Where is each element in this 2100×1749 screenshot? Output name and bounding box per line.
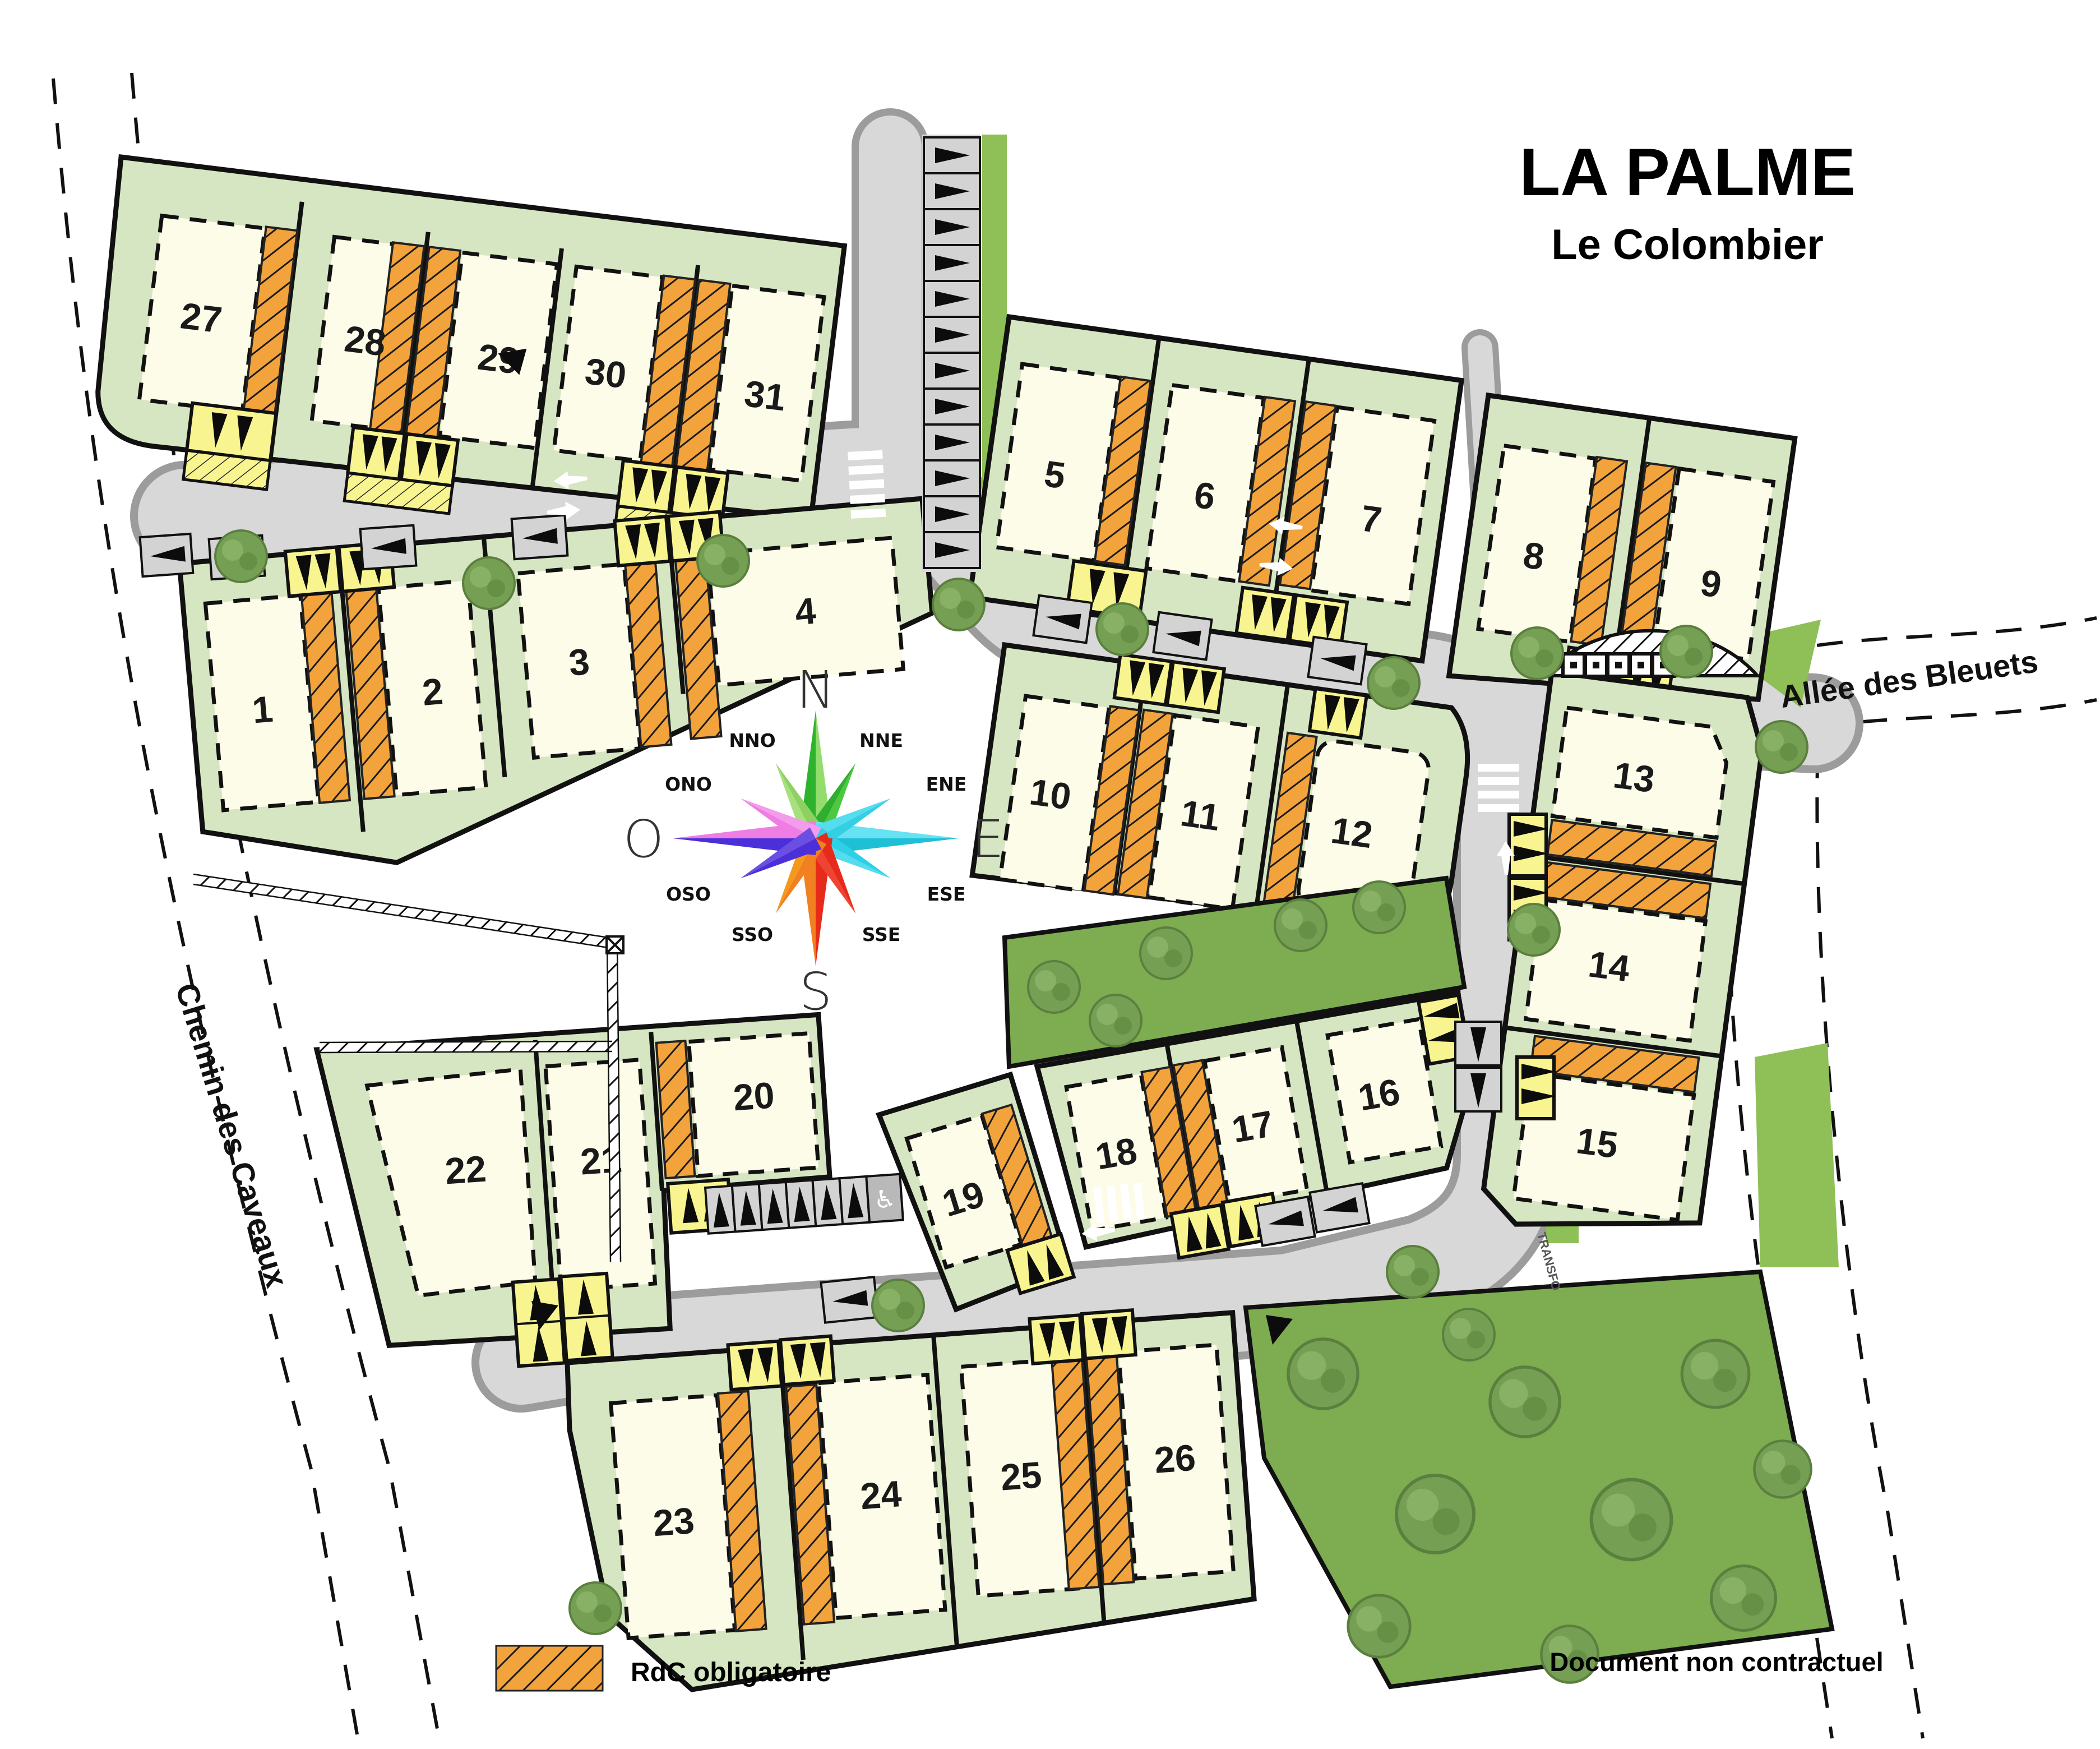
street-label-allee-des-bleuets: Allée des Bleuets xyxy=(1778,643,2040,714)
lot-14-label: 14 xyxy=(1586,943,1632,989)
lot-13-label: 13 xyxy=(1611,754,1657,800)
lot-2-label: 2 xyxy=(420,670,445,713)
compass-oso: OSO xyxy=(666,883,711,905)
lot-11-label: 11 xyxy=(1178,792,1222,838)
lot-24-label: 24 xyxy=(859,1473,903,1517)
park xyxy=(1246,1272,1832,1687)
compass-nno: NNO xyxy=(729,730,775,751)
lot-31-label: 31 xyxy=(742,372,788,418)
street-label-chemin-des-caveaux: Chemin des Caveaux xyxy=(169,979,295,1291)
lot-1-label: 1 xyxy=(251,688,275,731)
disclaimer-text: Document non contractuel xyxy=(1549,1647,1883,1677)
site-plan-page: 27 28 29 30 31 5 6 7 xyxy=(0,0,2100,1749)
compass-e: E xyxy=(972,809,1004,869)
compass-sso: SSO xyxy=(732,924,773,945)
lot-17-label: 17 xyxy=(1229,1102,1276,1151)
lot-23-label: 23 xyxy=(651,1499,696,1544)
legend-rdc-swatch xyxy=(496,1646,603,1691)
title-block: LA PALME Le Colombier xyxy=(1519,135,1856,269)
compass-nne: NNE xyxy=(859,730,903,751)
lot-20-label: 20 xyxy=(732,1074,775,1118)
project-subtitle: Le Colombier xyxy=(1551,221,1824,269)
compass-s: S xyxy=(799,962,832,1022)
lot-26-label: 26 xyxy=(1153,1437,1197,1481)
lot-12-label: 12 xyxy=(1329,809,1375,856)
lot-16-label: 16 xyxy=(1355,1070,1403,1119)
block-23-26: 23 24 25 26 xyxy=(564,1303,1258,1697)
lot-30-label: 30 xyxy=(583,350,629,396)
north-parking-column xyxy=(922,135,980,572)
lot-27-label: 27 xyxy=(178,294,224,340)
lot-15-label: 15 xyxy=(1574,1119,1620,1166)
lot-28-label: 28 xyxy=(342,317,388,363)
project-title: LA PALME xyxy=(1519,135,1856,210)
compass-ene: ENE xyxy=(926,773,967,795)
lot-10-label: 10 xyxy=(1027,770,1074,817)
compass-sse: SSE xyxy=(862,924,901,945)
lot-18-label: 18 xyxy=(1092,1129,1140,1178)
lot-25-label: 25 xyxy=(999,1453,1043,1498)
accessible-parking-icon: ♿ xyxy=(873,1184,897,1215)
lot-3-label: 3 xyxy=(567,640,591,684)
lot-4-label: 4 xyxy=(793,590,817,633)
legend-rdc-label: RdC obligatoire xyxy=(631,1658,831,1687)
compass-ono: ONO xyxy=(665,773,712,795)
compass-o: O xyxy=(623,809,664,869)
lot-22-label: 22 xyxy=(443,1148,487,1192)
compass-ese: ESE xyxy=(927,883,966,905)
compass-n: N xyxy=(797,660,835,720)
site-plan-map: 27 28 29 30 31 5 6 7 xyxy=(0,0,2100,1749)
